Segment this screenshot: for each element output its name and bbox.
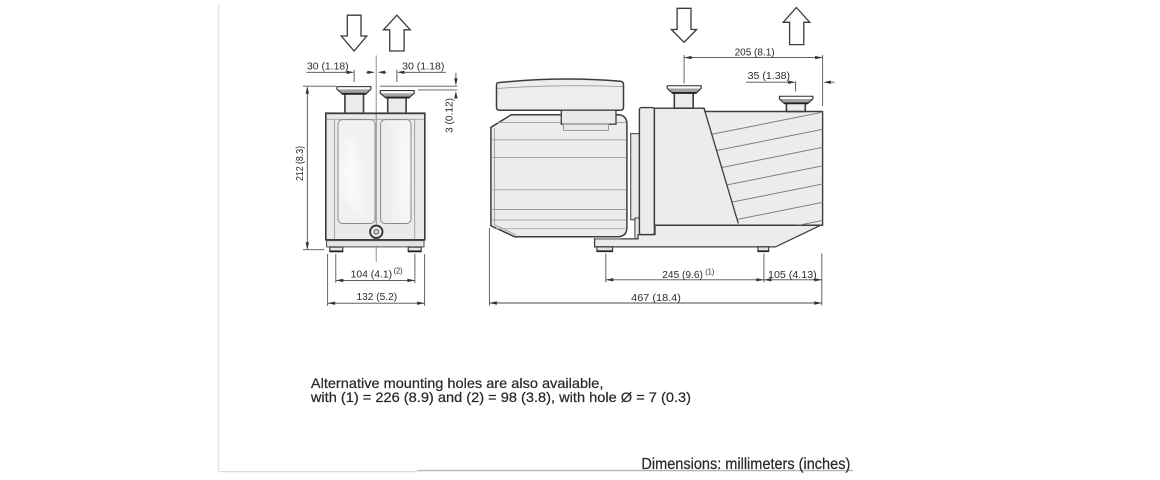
svg-text:(1): (1) [705,266,714,276]
svg-text:104 (4.1): 104 (4.1) [351,269,393,280]
svg-text:Dimensions: millimeters (inche: Dimensions: millimeters (inches) [641,456,850,473]
svg-text:205 (8.1): 205 (8.1) [735,48,775,59]
svg-text:212 (8.3): 212 (8.3) [295,146,306,181]
svg-text:245 (9.6): 245 (9.6) [662,270,703,281]
svg-text:with (1) = 226 (8.9) and (2) =: with (1) = 226 (8.9) and (2) = 98 (3.8),… [310,389,691,405]
svg-text:(2): (2) [394,266,403,276]
svg-text:132 (5.2): 132 (5.2) [357,292,398,303]
svg-text:467 (18.4): 467 (18.4) [631,293,681,304]
svg-text:30 (1.18): 30 (1.18) [307,61,349,72]
svg-text:30 (1.18): 30 (1.18) [402,61,444,72]
svg-text:35 (1.38): 35 (1.38) [748,71,791,82]
svg-text:3 (0.12): 3 (0.12) [445,98,456,133]
svg-text:105 (4.13): 105 (4.13) [768,270,817,281]
